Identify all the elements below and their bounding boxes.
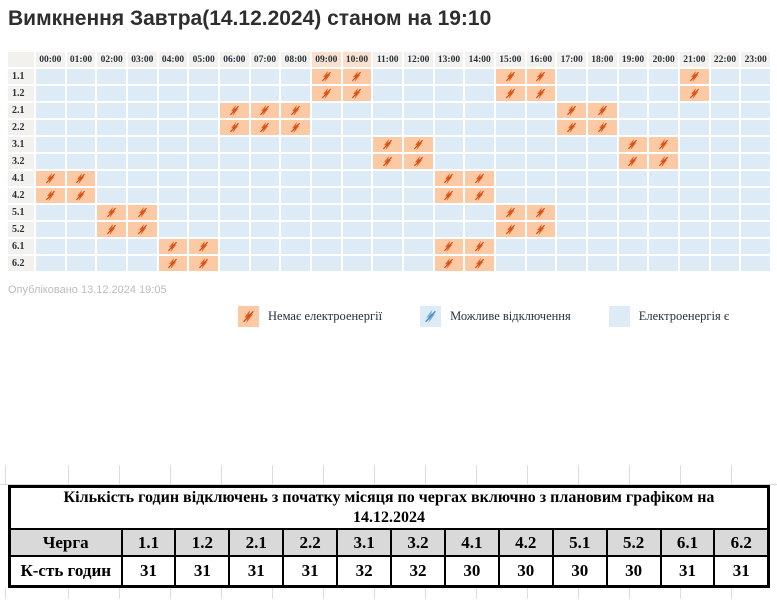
power-on-cell xyxy=(251,86,280,101)
power-on-cell xyxy=(588,86,617,101)
power-on-cell xyxy=(404,120,433,135)
outage-cell xyxy=(649,137,678,152)
power-on-cell xyxy=(588,154,617,169)
legend-item: Електроенергія є xyxy=(609,306,729,327)
power-on-cell xyxy=(680,256,709,271)
hour-header: 02:00 xyxy=(97,52,126,67)
outage-cell xyxy=(588,120,617,135)
no-power-icon xyxy=(474,241,485,252)
power-on-cell xyxy=(67,86,96,101)
queue-cell: 5.1 xyxy=(553,529,607,556)
power-on-cell xyxy=(465,69,494,84)
no-power-icon xyxy=(566,105,577,116)
power-on-cell xyxy=(527,120,556,135)
queue-label: 4.2 xyxy=(8,188,34,203)
outage-cell xyxy=(36,171,65,186)
power-on-cell xyxy=(557,171,586,186)
power-on-cell xyxy=(36,120,65,135)
no-power-icon xyxy=(45,190,56,201)
no-power-icon xyxy=(413,139,424,150)
no-power-icon xyxy=(75,190,86,201)
outage-cell xyxy=(312,86,341,101)
power-on-cell xyxy=(680,222,709,237)
power-on-cell xyxy=(711,171,740,186)
power-on-cell xyxy=(159,188,188,203)
power-on-cell xyxy=(711,239,740,254)
hour-header: 08:00 xyxy=(281,52,310,67)
power-on-cell xyxy=(741,120,770,135)
no-power-icon xyxy=(382,156,393,167)
power-on-cell xyxy=(680,205,709,220)
power-on-cell xyxy=(588,69,617,84)
power-on-cell xyxy=(128,69,157,84)
power-on-cell xyxy=(97,239,126,254)
no-power-icon xyxy=(321,88,332,99)
hours-cell: 30 xyxy=(607,556,661,586)
no-power-icon xyxy=(658,156,669,167)
no-power-icon xyxy=(167,258,178,269)
power-on-cell xyxy=(67,120,96,135)
power-on-cell xyxy=(557,256,586,271)
power-on-cell xyxy=(67,205,96,220)
power-on-cell xyxy=(496,239,525,254)
power-on-cell xyxy=(159,154,188,169)
outage-cell xyxy=(435,188,464,203)
no-power-icon xyxy=(474,173,485,184)
power-on-cell xyxy=(465,86,494,101)
power-on-cell xyxy=(619,120,648,135)
power-on-cell xyxy=(404,205,433,220)
power-on-cell xyxy=(680,120,709,135)
power-on-cell xyxy=(404,188,433,203)
power-on-cell xyxy=(496,120,525,135)
no-power-icon xyxy=(290,105,301,116)
hour-header: 05:00 xyxy=(189,52,218,67)
no-power-icon xyxy=(505,224,516,235)
power-on-cell xyxy=(496,137,525,152)
power-on-cell xyxy=(619,69,648,84)
no-power-icon xyxy=(229,105,240,116)
no-power-icon xyxy=(474,258,485,269)
power-on-cell xyxy=(741,256,770,271)
power-on-cell xyxy=(159,86,188,101)
power-on-cell xyxy=(741,154,770,169)
no-power-icon xyxy=(505,88,516,99)
power-on-cell xyxy=(741,86,770,101)
power-on-cell xyxy=(36,103,65,118)
outage-cell xyxy=(435,171,464,186)
row-label: К-сть годин xyxy=(10,556,122,586)
hour-header: 13:00 xyxy=(435,52,464,67)
power-on-cell xyxy=(97,256,126,271)
outage-cell xyxy=(159,256,188,271)
power-on-cell xyxy=(312,171,341,186)
power-on-cell xyxy=(435,222,464,237)
outage-cell xyxy=(220,120,249,135)
queue-label: 5.1 xyxy=(8,205,34,220)
no-power-icon xyxy=(351,71,362,82)
power-on-cell xyxy=(373,188,402,203)
power-on-cell xyxy=(557,137,586,152)
power-on-cell xyxy=(281,256,310,271)
power-on-cell xyxy=(97,171,126,186)
outage-cell xyxy=(343,69,372,84)
power-on-cell xyxy=(128,103,157,118)
outage-cell xyxy=(373,154,402,169)
hour-header: 03:00 xyxy=(128,52,157,67)
hour-header: 18:00 xyxy=(588,52,617,67)
no-power-icon xyxy=(443,241,454,252)
outage-cell xyxy=(527,205,556,220)
power-on-cell xyxy=(711,103,740,118)
power-on-cell xyxy=(404,222,433,237)
power-on-cell xyxy=(128,239,157,254)
power-on-cell xyxy=(36,137,65,152)
power-on-cell xyxy=(159,171,188,186)
power-on-cell xyxy=(649,205,678,220)
power-on-cell xyxy=(527,171,556,186)
power-on-cell xyxy=(251,171,280,186)
power-on-cell xyxy=(343,154,372,169)
hour-header: 04:00 xyxy=(159,52,188,67)
no-power-icon xyxy=(321,71,332,82)
power-on-cell xyxy=(527,103,556,118)
queue-cell: 2.2 xyxy=(283,529,337,556)
hours-cell: 31 xyxy=(661,556,715,586)
power-on-cell xyxy=(711,69,740,84)
legend-label: Немає електроенергії xyxy=(268,309,382,324)
power-on-cell xyxy=(67,137,96,152)
queue-label: 6.1 xyxy=(8,239,34,254)
hours-cell: 31 xyxy=(283,556,337,586)
power-on-cell xyxy=(128,256,157,271)
power-on-cell xyxy=(159,222,188,237)
hour-header: 23:00 xyxy=(741,52,770,67)
table-title-row: Кількість годин відключень з початку міс… xyxy=(10,487,769,530)
hour-header: 01:00 xyxy=(67,52,96,67)
outage-cell xyxy=(36,188,65,203)
power-on-cell xyxy=(465,205,494,220)
power-on-cell xyxy=(496,103,525,118)
outage-cell xyxy=(465,188,494,203)
power-on-cell xyxy=(251,205,280,220)
power-on-cell xyxy=(343,120,372,135)
power-on-cell xyxy=(36,205,65,220)
no-power-icon xyxy=(106,224,117,235)
power-on-cell xyxy=(36,222,65,237)
power-on-cell xyxy=(711,137,740,152)
no-power-icon xyxy=(689,71,700,82)
power-on-cell xyxy=(159,137,188,152)
hours-cell: 30 xyxy=(553,556,607,586)
power-on-cell xyxy=(711,120,740,135)
outage-cell xyxy=(680,86,709,101)
power-on-cell xyxy=(527,188,556,203)
hour-header: 11:00 xyxy=(373,52,402,67)
power-on-cell xyxy=(435,205,464,220)
power-on-cell xyxy=(373,86,402,101)
power-on-cell xyxy=(343,188,372,203)
power-on-cell xyxy=(251,239,280,254)
queue-label: 1.2 xyxy=(8,86,34,101)
power-on-cell xyxy=(312,103,341,118)
power-on-cell xyxy=(189,154,218,169)
power-on-cell xyxy=(619,256,648,271)
power-on-cell xyxy=(465,120,494,135)
power-on-cell xyxy=(435,120,464,135)
outage-cell xyxy=(496,205,525,220)
queue-cell: 6.2 xyxy=(714,529,768,556)
power-on-cell xyxy=(128,86,157,101)
outage-cell xyxy=(527,222,556,237)
power-on-cell xyxy=(220,69,249,84)
power-on-cell xyxy=(312,205,341,220)
power-on-cell xyxy=(680,239,709,254)
table-row-queues: Черга1.11.22.12.23.13.24.14.25.15.26.16.… xyxy=(10,529,769,556)
power-on-cell xyxy=(619,239,648,254)
no-power-icon xyxy=(597,105,608,116)
power-on-cell xyxy=(220,86,249,101)
power-on-cell xyxy=(97,154,126,169)
power-on-cell xyxy=(619,86,648,101)
outage-cell xyxy=(619,137,648,152)
power-on-cell xyxy=(97,86,126,101)
queue-cell: 4.2 xyxy=(499,529,553,556)
power-on-cell xyxy=(588,222,617,237)
outage-cell xyxy=(312,69,341,84)
outage-cell xyxy=(159,239,188,254)
power-on-cell xyxy=(404,103,433,118)
power-on-cell xyxy=(680,154,709,169)
power-on-cell xyxy=(465,137,494,152)
outage-cell xyxy=(220,103,249,118)
no-power-icon xyxy=(198,241,209,252)
power-on-cell xyxy=(496,154,525,169)
power-on-cell xyxy=(711,205,740,220)
power-on-cell xyxy=(251,137,280,152)
power-on-cell xyxy=(527,239,556,254)
outage-cell xyxy=(465,256,494,271)
power-on-cell xyxy=(251,188,280,203)
no-power-icon xyxy=(505,207,516,218)
power-on-cell xyxy=(97,188,126,203)
hour-header: 16:00 xyxy=(527,52,556,67)
power-on-cell xyxy=(373,256,402,271)
no-power-icon xyxy=(505,71,516,82)
outage-cell xyxy=(281,103,310,118)
power-on-cell xyxy=(741,222,770,237)
power-on-cell xyxy=(128,171,157,186)
hour-header: 07:00 xyxy=(251,52,280,67)
hour-header: 15:00 xyxy=(496,52,525,67)
power-on-cell xyxy=(97,103,126,118)
power-on-cell xyxy=(189,188,218,203)
power-on-cell xyxy=(373,69,402,84)
outage-cell xyxy=(128,222,157,237)
queue-cell: 6.1 xyxy=(661,529,715,556)
power-on-cell xyxy=(741,103,770,118)
power-on-cell xyxy=(588,188,617,203)
power-on-cell xyxy=(588,205,617,220)
outage-cell xyxy=(97,205,126,220)
power-on-cell xyxy=(527,256,556,271)
power-on-cell xyxy=(159,205,188,220)
power-on-cell xyxy=(220,137,249,152)
power-on-cell xyxy=(36,239,65,254)
power-on-cell xyxy=(281,171,310,186)
no-power-icon xyxy=(351,88,362,99)
power-on-cell xyxy=(404,256,433,271)
outage-cell xyxy=(496,222,525,237)
power-on-cell xyxy=(189,103,218,118)
power-on-cell xyxy=(373,103,402,118)
outage-cell xyxy=(619,154,648,169)
power-on-cell xyxy=(496,188,525,203)
power-on-cell xyxy=(67,222,96,237)
power-on-cell xyxy=(527,137,556,152)
power-on-cell xyxy=(251,256,280,271)
queue-cell: 1.2 xyxy=(175,529,229,556)
queue-label: 5.2 xyxy=(8,222,34,237)
power-on-cell xyxy=(312,120,341,135)
power-on-cell xyxy=(619,188,648,203)
power-on-cell xyxy=(435,86,464,101)
power-on-cell xyxy=(649,86,678,101)
power-on-cell xyxy=(557,222,586,237)
no-power-icon xyxy=(290,122,301,133)
power-on-cell xyxy=(649,256,678,271)
power-on-cell xyxy=(557,188,586,203)
queue-cell: 1.1 xyxy=(122,529,176,556)
power-on-cell xyxy=(312,188,341,203)
queue-cell: 3.1 xyxy=(337,529,391,556)
power-on-cell xyxy=(67,69,96,84)
no-power-icon xyxy=(259,105,270,116)
legend-item: Немає електроенергії xyxy=(238,306,382,327)
power-on-cell xyxy=(557,69,586,84)
power-on-cell xyxy=(312,154,341,169)
outage-cell xyxy=(404,154,433,169)
no-power-icon xyxy=(535,207,546,218)
outage-cell xyxy=(465,239,494,254)
hour-header: 14:00 xyxy=(465,52,494,67)
power-on-cell xyxy=(619,103,648,118)
power-on-cell xyxy=(281,154,310,169)
queue-cell: 2.1 xyxy=(229,529,283,556)
power-on-cell xyxy=(220,154,249,169)
queue-label: 2.1 xyxy=(8,103,34,118)
no-power-icon xyxy=(627,139,638,150)
power-on-cell xyxy=(404,171,433,186)
hours-cell: 30 xyxy=(499,556,553,586)
power-on-cell xyxy=(711,256,740,271)
hour-header: 19:00 xyxy=(619,52,648,67)
no-power-icon xyxy=(535,71,546,82)
outage-schedule-grid: 00:0001:0002:0003:0004:0005:0006:0007:00… xyxy=(8,52,770,271)
power-on-cell xyxy=(588,239,617,254)
page-title: Вимкнення Завтра(14.12.2024) станом на 1… xyxy=(8,6,777,32)
table-title: Кількість годин відключень з початку міс… xyxy=(10,487,769,530)
power-on-cell xyxy=(220,256,249,271)
power-on-cell xyxy=(312,239,341,254)
queue-label: 6.2 xyxy=(8,256,34,271)
no-power-icon xyxy=(75,173,86,184)
power-on-cell xyxy=(435,103,464,118)
hour-header: 22:00 xyxy=(711,52,740,67)
no-power-icon xyxy=(597,122,608,133)
power-on-cell xyxy=(741,171,770,186)
outage-cell xyxy=(404,137,433,152)
legend-swatch xyxy=(238,306,259,327)
row-label: Черга xyxy=(10,529,122,556)
power-on-cell xyxy=(404,69,433,84)
outage-cell xyxy=(67,171,96,186)
power-on-cell xyxy=(649,171,678,186)
power-on-cell xyxy=(741,239,770,254)
hours-cell: 31 xyxy=(229,556,283,586)
power-on-cell xyxy=(435,69,464,84)
power-on-cell xyxy=(680,137,709,152)
power-on-cell xyxy=(189,222,218,237)
power-on-cell xyxy=(741,188,770,203)
outage-cell xyxy=(465,171,494,186)
hour-header: 00:00 xyxy=(36,52,65,67)
power-on-cell xyxy=(680,103,709,118)
power-on-cell xyxy=(189,69,218,84)
power-on-cell xyxy=(281,222,310,237)
legend-swatch xyxy=(420,306,441,327)
power-on-cell xyxy=(465,222,494,237)
power-on-cell xyxy=(251,222,280,237)
outage-cell xyxy=(97,222,126,237)
outage-cell xyxy=(189,239,218,254)
no-power-icon xyxy=(443,258,454,269)
power-on-cell xyxy=(680,171,709,186)
outage-cell xyxy=(557,120,586,135)
hours-cell: 30 xyxy=(445,556,499,586)
power-on-cell xyxy=(404,86,433,101)
power-on-cell xyxy=(557,239,586,254)
power-on-cell xyxy=(343,137,372,152)
legend-swatch xyxy=(609,306,630,327)
power-on-cell xyxy=(251,154,280,169)
no-power-icon xyxy=(45,173,56,184)
outage-cell xyxy=(649,154,678,169)
outage-cell xyxy=(527,69,556,84)
queue-cell: 4.1 xyxy=(445,529,499,556)
no-power-icon xyxy=(535,224,546,235)
power-on-cell xyxy=(128,188,157,203)
power-on-cell xyxy=(36,86,65,101)
outage-cell xyxy=(588,103,617,118)
power-on-cell xyxy=(281,205,310,220)
outage-cell xyxy=(251,103,280,118)
power-on-cell xyxy=(649,69,678,84)
power-on-cell xyxy=(557,205,586,220)
power-on-cell xyxy=(343,103,372,118)
outage-cell xyxy=(128,205,157,220)
power-on-cell xyxy=(435,137,464,152)
no-power-icon xyxy=(167,241,178,252)
queue-label: 1.1 xyxy=(8,69,34,84)
power-on-cell xyxy=(741,205,770,220)
power-on-cell xyxy=(496,171,525,186)
no-power-icon xyxy=(242,310,255,323)
no-power-icon xyxy=(137,207,148,218)
power-on-cell xyxy=(281,86,310,101)
power-on-cell xyxy=(36,154,65,169)
power-on-cell xyxy=(312,222,341,237)
